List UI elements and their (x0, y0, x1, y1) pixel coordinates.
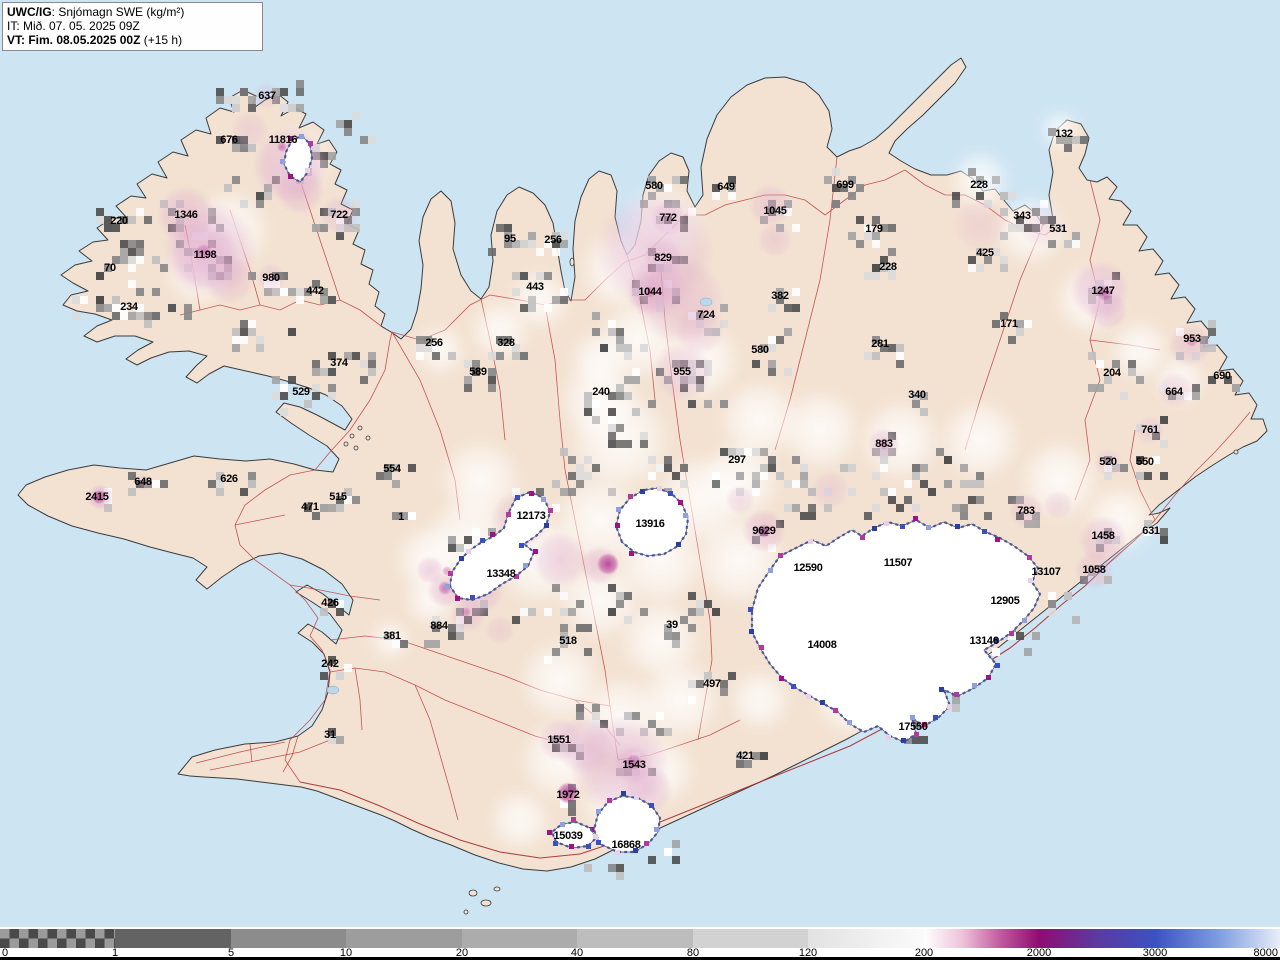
glacier-edge-pixel (308, 141, 313, 146)
small-island (464, 910, 468, 914)
small-island (469, 890, 477, 896)
glacier-edge-pixel (466, 549, 471, 554)
swe-pink-blob (725, 485, 755, 515)
glacier-edge-pixel (749, 629, 754, 634)
swe-magenta-spot (597, 553, 619, 575)
glacier-edge-pixel (569, 844, 574, 849)
glacier-edge-pixel (640, 489, 645, 494)
colorbar-segment (0, 929, 115, 948)
swe-pink-blob (230, 110, 270, 150)
glacier-edge-pixel (288, 136, 293, 141)
swe-pink-blob (133, 472, 153, 492)
colorbar-segment (808, 929, 924, 948)
glacier-edge-pixel (514, 574, 519, 579)
glacier-edge-pixel (668, 491, 673, 496)
glacier-edge-pixel (901, 738, 906, 743)
glacier-edge-pixel (533, 549, 538, 554)
glacier-edge-pixel (900, 524, 905, 529)
colorbar-segment (1039, 929, 1155, 948)
glacier-edge-pixel (299, 134, 304, 139)
glacier-edge-pixel (833, 708, 838, 713)
glacier-edge-pixel (922, 722, 927, 727)
glacier-edge-pixel (926, 525, 931, 530)
glacier-edge-pixel (1022, 618, 1027, 623)
glacier-edge-pixel (634, 795, 639, 800)
colorbar-segment (346, 929, 462, 948)
lake (327, 686, 339, 694)
glacier-edge-pixel (607, 798, 612, 803)
swe-magenta-spot (626, 754, 642, 770)
colorbar-segment (693, 929, 808, 948)
glacier-edge-pixel (1028, 578, 1033, 583)
glacier-edge-pixel (305, 168, 310, 173)
colorbar-segments (0, 929, 1280, 948)
glacier-edge-pixel (886, 735, 891, 740)
colorbar-legend: 01510204080120200200030008000 (0, 927, 1280, 960)
iceland-map (0, 0, 1280, 927)
swe-pink-blob (256, 263, 286, 293)
glacier-edge-pixel (910, 715, 915, 720)
glacier-edge-pixel (596, 809, 601, 814)
swe-pink-blob (652, 342, 712, 402)
lake (700, 298, 712, 306)
glacier-edge-pixel (571, 817, 576, 822)
glacier-edge-pixel (778, 553, 783, 558)
swe-pink-blob (1157, 372, 1193, 408)
glacier-edge-pixel (748, 607, 753, 612)
glacier-edge-pixel (593, 834, 598, 839)
swe-magenta-spot (1097, 285, 1113, 301)
small-island (358, 426, 362, 430)
glacier-edge-pixel (455, 596, 460, 601)
snowfield-glow (490, 790, 550, 850)
valid-time-offset: (+15 h) (140, 33, 182, 47)
glacier-edge-pixel (548, 508, 553, 513)
glacier-edge-pixel (523, 563, 528, 568)
glacier-edge-pixel (448, 571, 453, 576)
swe-pink-blob (1074, 550, 1114, 590)
swe-magenta-spot (92, 490, 106, 504)
glacier-edge-pixel (676, 542, 681, 547)
small-island (366, 436, 370, 440)
swe-magenta-spot (557, 782, 579, 804)
glacier-edge-pixel (791, 684, 796, 689)
swe-pink-blob (757, 222, 793, 258)
header-line-product: UWC/IG: Snjómagn SWE (kg/m²) (7, 5, 257, 19)
swe-pink-blob (1094, 448, 1122, 476)
glacier-edge-pixel (628, 494, 633, 499)
swe-pink-blob (485, 615, 515, 645)
swe-magenta-spot (1186, 335, 1198, 347)
swe-pink-blob (253, 82, 281, 110)
snowfield-glow (940, 400, 1020, 480)
swe-magenta-spot (277, 142, 287, 152)
small-island (494, 887, 500, 891)
glacier-edge-pixel (657, 486, 662, 491)
small-island (1234, 450, 1238, 454)
glacier-edge-pixel (654, 827, 659, 832)
swe-pink-blob (748, 183, 792, 227)
glacier-edge-pixel (519, 543, 524, 548)
glacier-edge-pixel (547, 830, 552, 835)
colorbar-segment (1155, 929, 1280, 948)
swe-magenta-spot (644, 286, 656, 298)
glacier-edge-pixel (954, 692, 959, 697)
glacier-edge-pixel (913, 516, 918, 521)
glacier-edge-pixel (972, 683, 977, 688)
glacier-edge-pixel (629, 551, 634, 556)
glacier-edge-pixel (633, 848, 638, 853)
glacier-edge-pixel (808, 539, 813, 544)
small-island (481, 900, 491, 906)
colorbar-segment (231, 929, 346, 948)
swe-pink-blob (650, 200, 686, 236)
glacier-edge-pixel (955, 524, 960, 529)
glacier-edge-pixel (678, 500, 683, 505)
glacier-edge-pixel (806, 694, 811, 699)
glacier-edge-pixel (615, 850, 620, 855)
swe-pink-blob (1008, 493, 1044, 529)
glacier-edge-pixel (288, 174, 293, 179)
glacier-edge-pixel (872, 526, 877, 531)
glacier-edge-pixel (445, 584, 450, 589)
glacier-edge-pixel (759, 645, 764, 650)
glacier-edge-pixel (947, 704, 952, 709)
glacier-edge-pixel (649, 803, 654, 808)
glacier-edge-pixel (995, 663, 1000, 668)
snow-swe-map-screenshot: 6376761181613467222201198709804422343745… (0, 0, 1280, 960)
swe-pink-blob (1018, 203, 1062, 247)
glacier-edge-pixel (490, 532, 495, 537)
glacier-edge-pixel (779, 676, 784, 681)
glacier-edge-pixel (586, 844, 591, 849)
glacier-edge-pixel (470, 595, 475, 600)
glacier-edge-pixel (995, 537, 1000, 542)
product-code: UWC/IG (7, 5, 52, 19)
small-island (354, 446, 358, 450)
swe-pink-blob (1043, 490, 1073, 520)
product-header: UWC/IG: Snjómagn SWE (kg/m²) IT: Mið. 07… (2, 2, 263, 51)
glacier-edge-pixel (939, 687, 944, 692)
swe-pink-blob (810, 470, 850, 510)
glacier-edge-pixel (860, 535, 865, 540)
glacier-edge-pixel (683, 513, 688, 518)
glacier-edge-pixel (553, 841, 558, 846)
colorbar-segment (577, 929, 693, 948)
glacier-edge-pixel (820, 700, 825, 705)
glacier-edge-pixel (644, 841, 649, 846)
glacier-edge-pixel (541, 497, 546, 502)
swe-pink-blob (952, 197, 1008, 253)
glacier-edge-pixel (596, 840, 601, 845)
glacier-edge-pixel (615, 523, 620, 528)
valid-time: VT: Fim. 08.05.2025 00Z (7, 33, 140, 47)
swe-magenta-spot (757, 524, 771, 538)
glacier-edge-pixel (986, 675, 991, 680)
glacier-edge-pixel (994, 638, 999, 643)
glacier-edge-pixel (621, 791, 626, 796)
colorbar-segment (462, 929, 577, 948)
glacier-edge-pixel (544, 523, 549, 528)
colorbar-segment (924, 929, 1039, 948)
colorbar-segment (115, 929, 231, 948)
header-line-valid-time: VT: Fim. 08.05.2025 00Z (+15 h) (7, 33, 257, 47)
product-title: : Snjómagn SWE (kg/m²) (52, 5, 185, 19)
glacier-edge-pixel (847, 720, 852, 725)
glacier-edge-pixel (506, 512, 511, 517)
swe-pink-blob (538, 718, 582, 762)
glacier-edge-pixel (480, 538, 485, 543)
swe-magenta-spot (878, 438, 890, 450)
glacier-edge-pixel (459, 556, 464, 561)
glacier-edge-pixel (768, 568, 773, 573)
header-line-init-time: IT: Mið. 07. 05. 2025 09Z (7, 19, 257, 33)
small-island (344, 442, 348, 446)
small-island (350, 434, 354, 438)
glacier-edge-pixel (515, 495, 520, 500)
swe-pink-blob (319, 195, 359, 235)
small-island (570, 258, 574, 266)
glacier-edge-pixel (560, 822, 565, 827)
glacier-edge-pixel (884, 521, 889, 526)
swe-pink-blob (205, 255, 255, 305)
swe-magenta-spot (196, 244, 212, 260)
swe-pink-blob (1135, 415, 1165, 445)
glacier-edge-pixel (529, 491, 534, 496)
glacier-edge-pixel (1027, 555, 1032, 560)
glacier-edge-pixel (616, 507, 621, 512)
swe-pink-blob (532, 532, 588, 588)
swe-pink-blob (416, 556, 444, 584)
map-area: 6376761181613467222201198709804422343745… (0, 0, 1280, 927)
glacier-edge-pixel (933, 715, 938, 720)
swe-magenta-spot (461, 607, 471, 617)
glacier-edge-pixel (280, 159, 285, 164)
glacier-edge-pixel (982, 529, 987, 534)
glacier-edge-pixel (1009, 631, 1014, 636)
glacier-edge-pixel (914, 732, 919, 737)
